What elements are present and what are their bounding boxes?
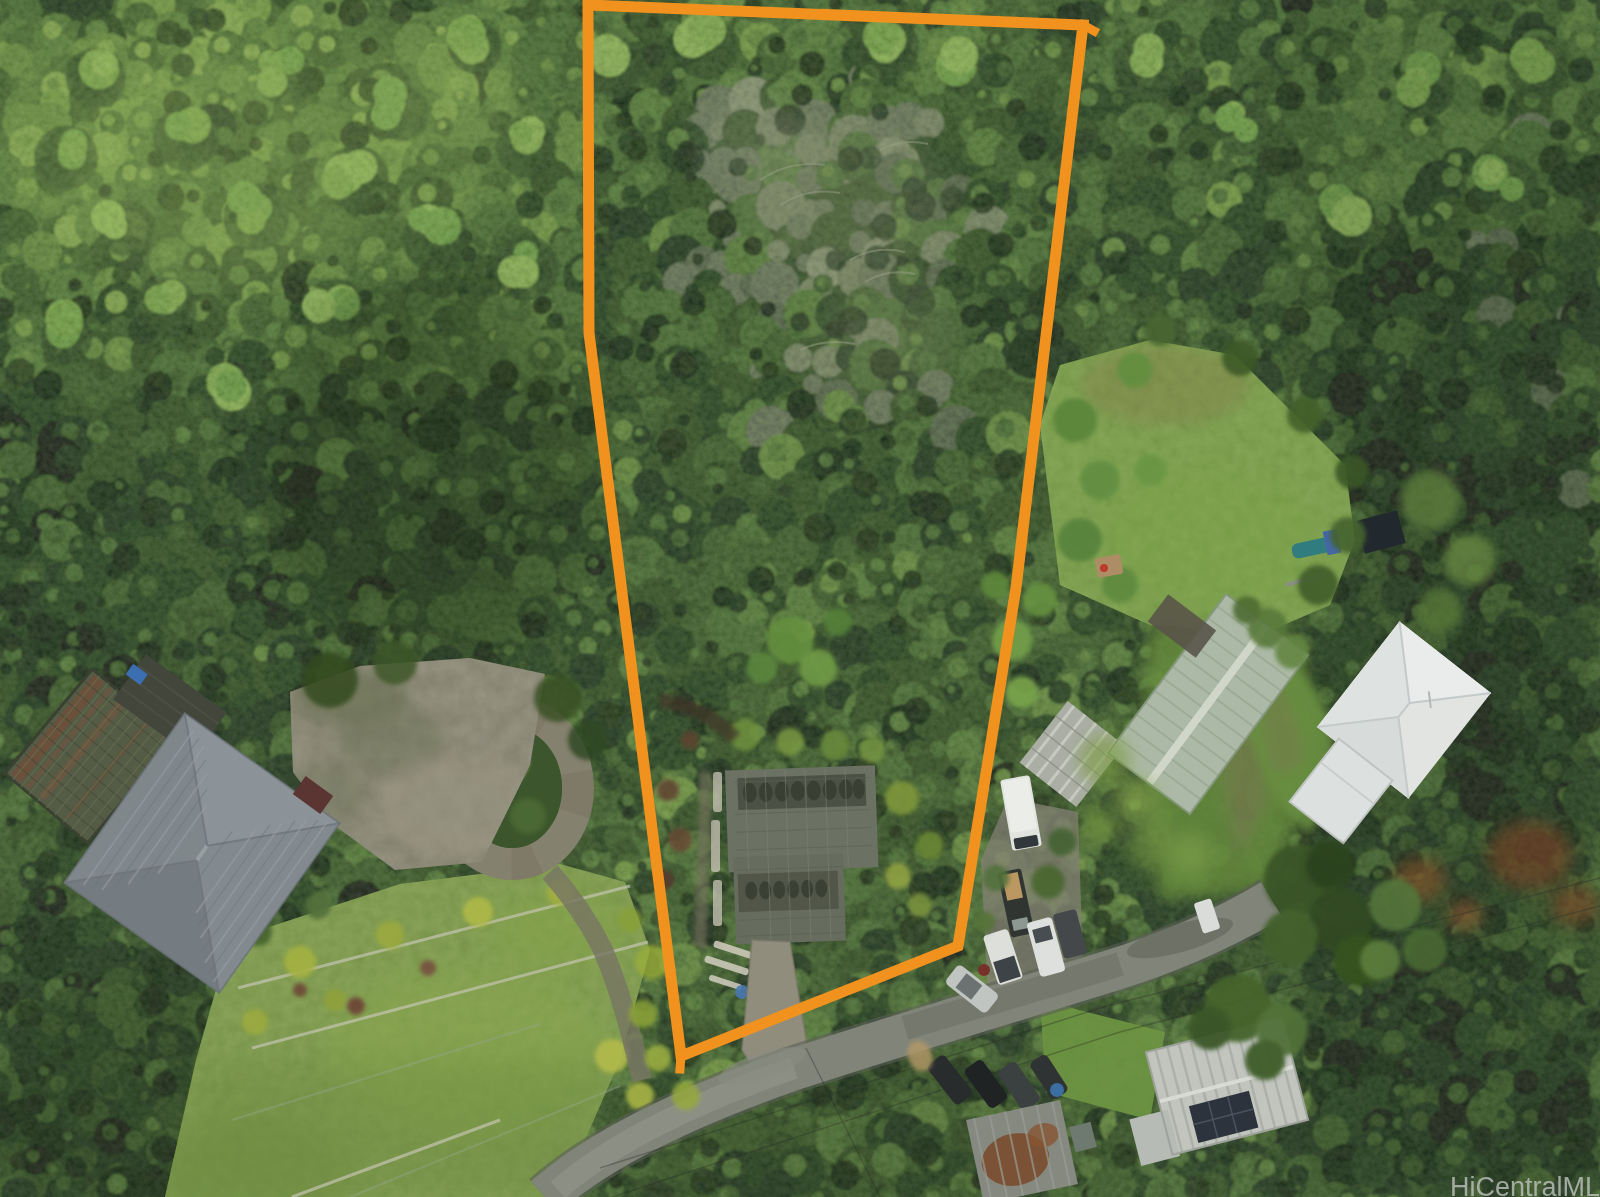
- svg-text:HiCentralMLS: HiCentralMLS: [1450, 1172, 1600, 1197]
